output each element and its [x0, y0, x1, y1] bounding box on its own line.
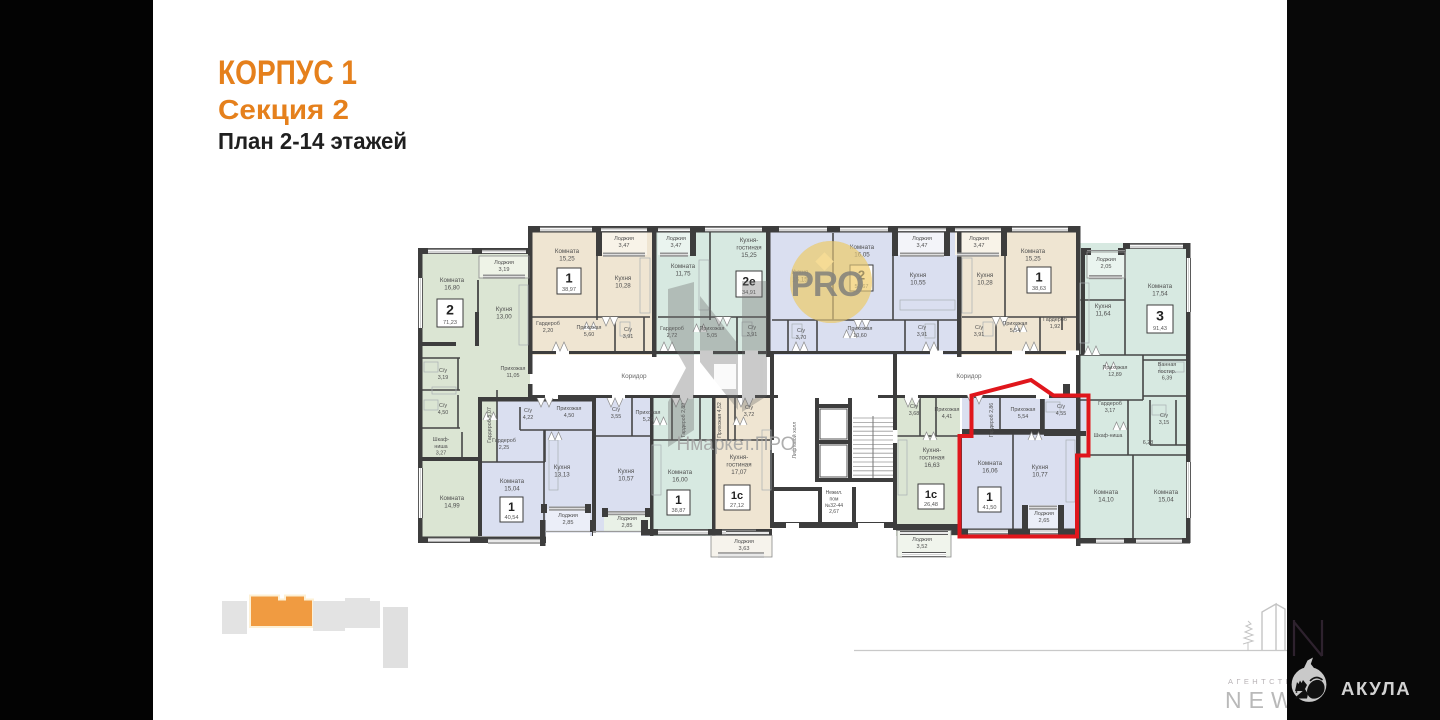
svg-text:PRO: PRO: [791, 265, 864, 304]
svg-text:Коридор: Коридор: [621, 373, 647, 380]
svg-text:Кухня11,64: Кухня11,64: [1095, 303, 1112, 318]
svg-text:План 2-14 этажей: План 2-14 этажей: [218, 128, 407, 154]
svg-text:Кухня13,13: Кухня13,13: [554, 464, 571, 479]
svg-text:1с: 1с: [925, 489, 937, 501]
svg-text:Кухня10,77: Кухня10,77: [1032, 464, 1049, 479]
svg-text:26,48: 26,48: [924, 502, 938, 508]
svg-text:71,23: 71,23: [443, 320, 457, 326]
svg-text:38,87: 38,87: [672, 508, 686, 514]
svg-text:Кухня10,57: Кухня10,57: [618, 468, 635, 483]
svg-text:1: 1: [986, 490, 993, 504]
svg-text:1: 1: [675, 493, 682, 507]
svg-text:КОРПУС 1: КОРПУС 1: [218, 54, 357, 92]
svg-text:С/у3,15: С/у3,15: [1159, 413, 1170, 426]
svg-text:Кухня10,55: Кухня10,55: [910, 272, 927, 287]
svg-text:С/у3,91: С/у3,91: [917, 325, 928, 338]
svg-text:38,63: 38,63: [1032, 286, 1046, 292]
svg-text:С/у3,70: С/у3,70: [796, 328, 807, 341]
svg-text:41,50: 41,50: [983, 505, 997, 511]
svg-text:6,28: 6,28: [1143, 440, 1154, 446]
svg-text:С/у4,55: С/у4,55: [1056, 404, 1067, 417]
svg-text:Кухня13,00: Кухня13,00: [496, 306, 513, 321]
svg-text:Шкаф-ниша: Шкаф-ниша: [1094, 433, 1123, 439]
svg-text:Кухня10,28: Кухня10,28: [977, 272, 994, 287]
svg-text:С/у3,19: С/у3,19: [438, 368, 449, 381]
svg-text:Коридор: Коридор: [956, 373, 982, 380]
svg-text:С/у3,91: С/у3,91: [623, 327, 634, 340]
svg-text:АКУЛА: АКУЛА: [1341, 678, 1411, 699]
svg-text:С/у4,50: С/у4,50: [438, 403, 449, 416]
svg-text:1: 1: [565, 271, 572, 286]
svg-text:С/у3,91: С/у3,91: [974, 325, 985, 338]
svg-text:Прихожая 4,52: Прихожая 4,52: [717, 402, 723, 438]
svg-text:С/у3,55: С/у3,55: [611, 407, 622, 420]
svg-text:С/у4,22: С/у4,22: [523, 408, 534, 421]
svg-text:27,12: 27,12: [730, 503, 744, 509]
svg-text:Кухня10,28: Кухня10,28: [615, 275, 632, 290]
svg-text:1: 1: [508, 500, 515, 514]
svg-text:91,43: 91,43: [1153, 326, 1167, 332]
svg-text:С/у3,68: С/у3,68: [909, 404, 920, 417]
svg-text:Нмаркет.ПРО: Нмаркет.ПРО: [677, 434, 796, 455]
svg-text:3: 3: [1156, 308, 1164, 324]
svg-text:1: 1: [1035, 270, 1042, 285]
svg-text:Секция 2: Секция 2: [218, 94, 349, 125]
svg-text:Гардероб 2,86: Гардероб 2,86: [989, 403, 995, 437]
svg-text:2: 2: [446, 302, 454, 318]
svg-text:40,54: 40,54: [505, 515, 519, 521]
svg-text:1с: 1с: [731, 490, 743, 502]
svg-text:38,97: 38,97: [562, 287, 576, 293]
